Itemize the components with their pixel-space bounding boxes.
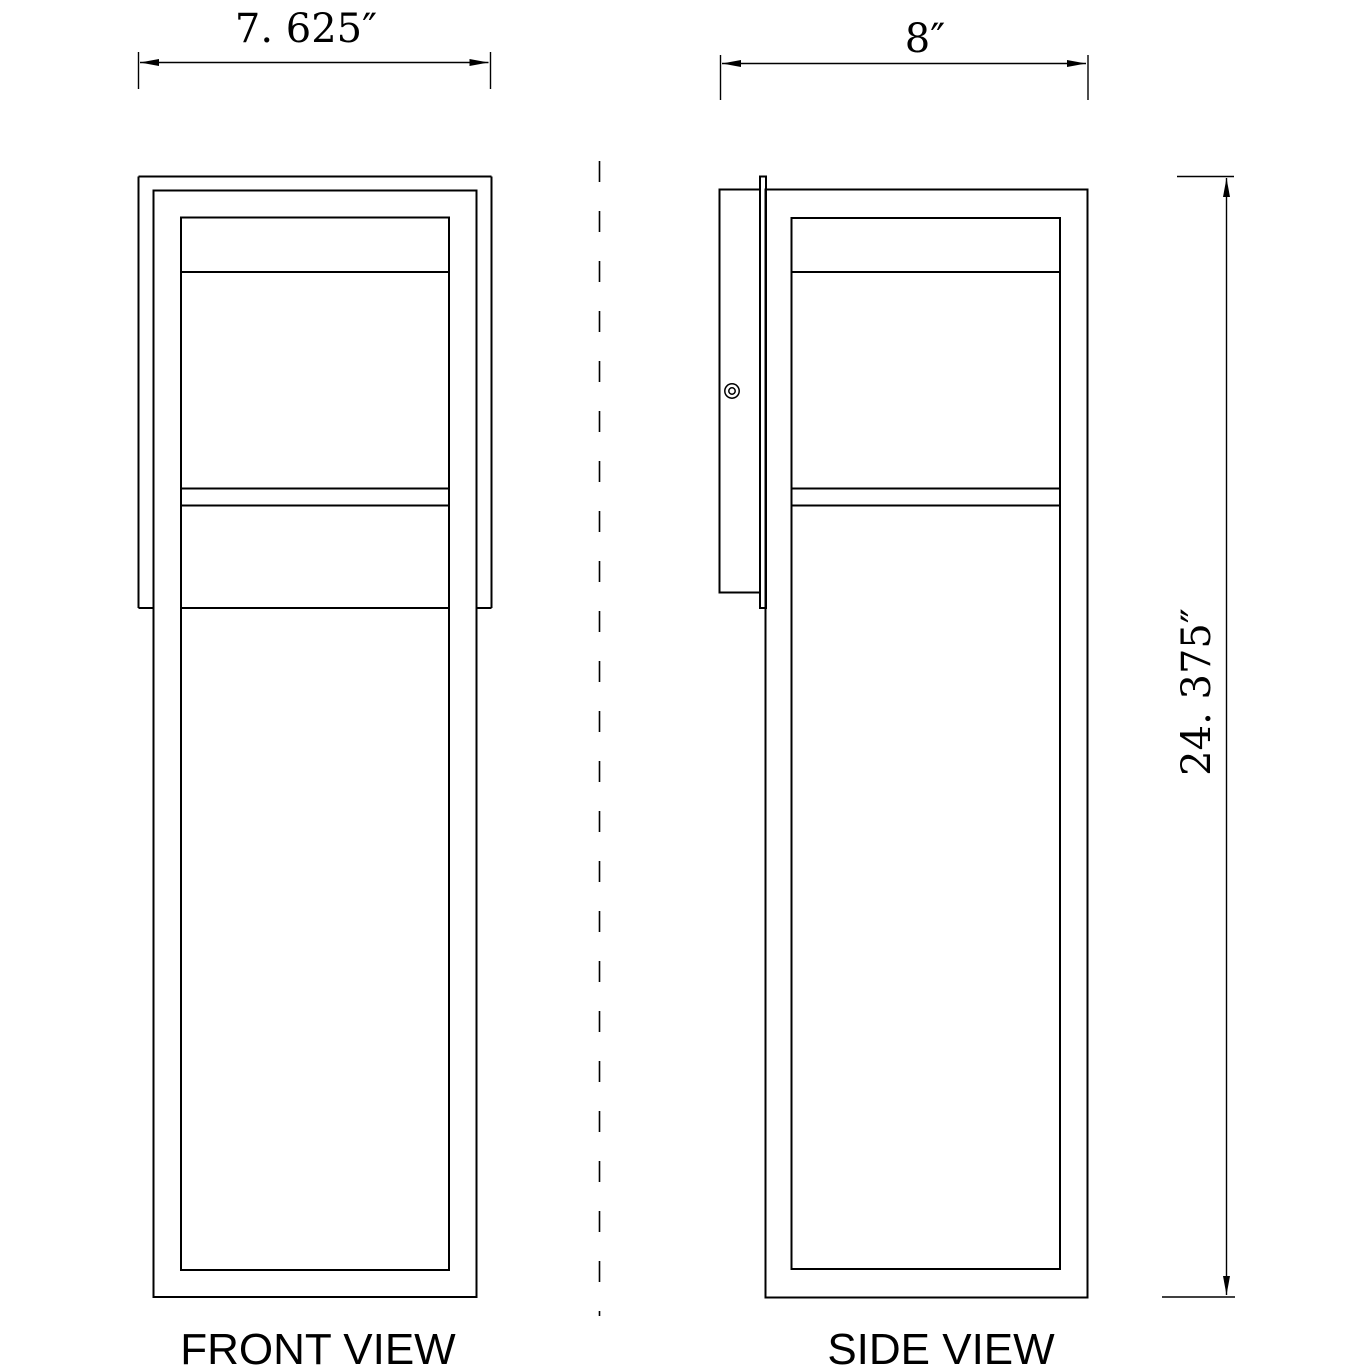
height-dimension-text: 24. 375″ bbox=[1174, 608, 1220, 776]
side-view-label: SIDE VIEW bbox=[827, 1325, 1055, 1368]
side-width-dimension-text: 8″ bbox=[905, 16, 945, 62]
front-width-dimension-text: 7. 625″ bbox=[235, 6, 377, 52]
dimensional-drawing-page: 7. 625″ 8″ 24. 375″ FRONT VIEW SIDE VIEW bbox=[0, 0, 1368, 1368]
front-view-label: FRONT VIEW bbox=[180, 1325, 456, 1368]
technical-drawing-canvas: 7. 625″ 8″ 24. 375″ FRONT VIEW SIDE VIEW bbox=[0, 0, 1368, 1368]
drawing-background bbox=[0, 0, 1368, 1368]
